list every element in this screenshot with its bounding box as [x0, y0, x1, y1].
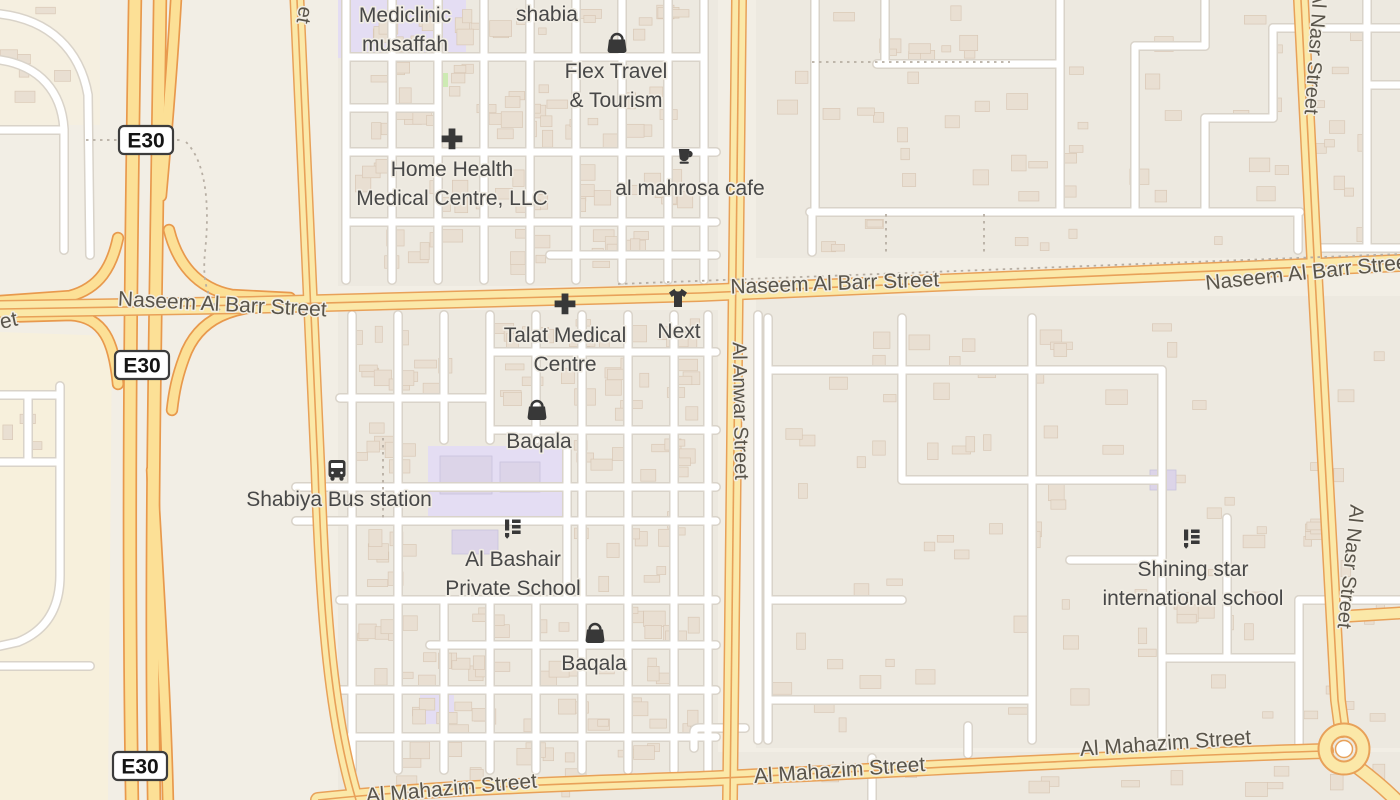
poi-label: Centre	[533, 353, 596, 376]
poi-label: Al Bashair	[465, 548, 561, 571]
shield-label: E30	[121, 756, 158, 779]
poi-label: Medical Centre, LLC	[356, 187, 547, 210]
poi-label: international school	[1103, 587, 1284, 610]
poi-label: Private School	[445, 577, 580, 600]
poi-label: Home Health	[391, 158, 514, 181]
poi-label: Talat Medical	[504, 324, 627, 347]
poi-label: Shining star	[1138, 558, 1249, 581]
poi-label: shabia	[516, 3, 578, 26]
poi-label: shabia	[516, 3, 578, 26]
poi-label: Next	[657, 320, 700, 343]
map-container[interactable]: Naseem Al Barr StreetNaseem Al Barr Stre…	[0, 0, 1400, 800]
route-shield: E30	[115, 351, 169, 379]
roundabout	[1325, 730, 1363, 768]
route-shield: E30	[119, 126, 173, 154]
shield-label: E30	[123, 355, 160, 378]
poi-label: al mahrosa cafe	[615, 177, 764, 200]
street-label: Al Anwar Street	[728, 342, 752, 481]
poi-label: musaffah	[362, 33, 448, 56]
shield-label: E30	[127, 130, 164, 153]
poi-label: Baqala	[561, 652, 627, 675]
poi-label: Mediclinic	[359, 4, 451, 27]
poi-label: & Tourism	[570, 89, 663, 112]
map-canvas[interactable]: Naseem Al Barr StreetNaseem Al Barr Stre…	[0, 0, 1400, 800]
poi-label: Flex Travel	[565, 60, 668, 83]
poi-label: Baqala	[506, 430, 572, 453]
poi-label: Shabiya Bus station	[246, 488, 432, 511]
route-shield: E30	[113, 752, 167, 780]
